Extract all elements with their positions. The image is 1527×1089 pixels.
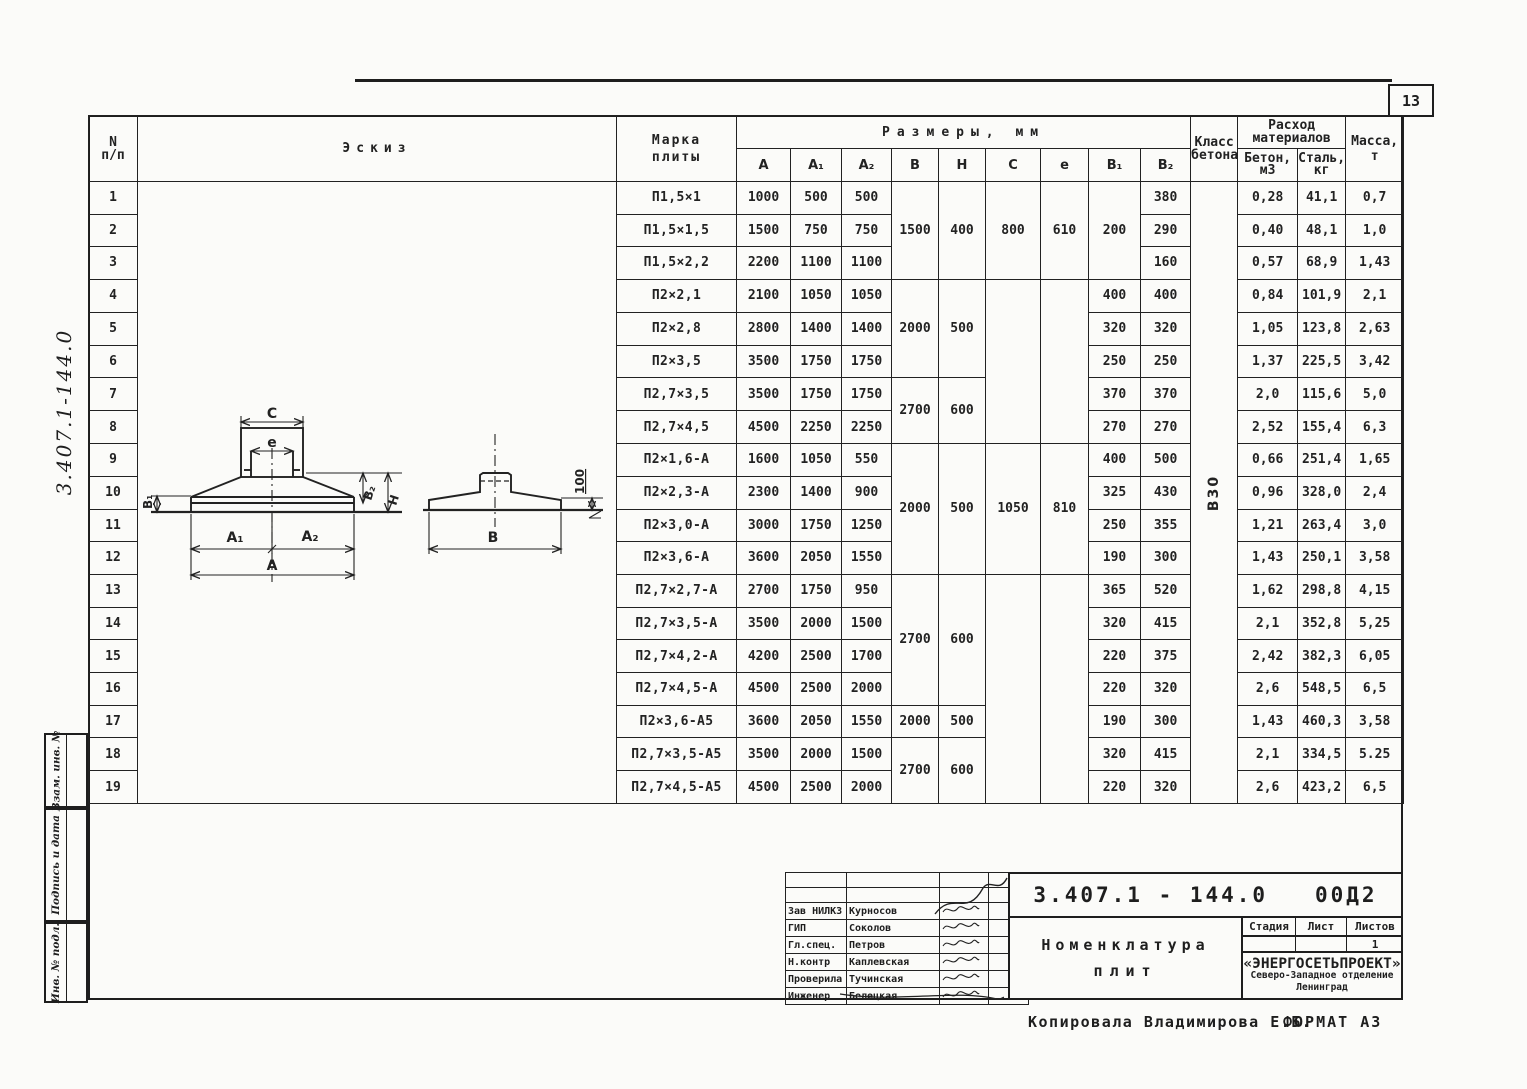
cell-B1: 250	[1089, 509, 1141, 542]
signature-role: Зав НИЛКЗ	[786, 903, 847, 920]
cell-row-number: 2	[89, 214, 138, 247]
header-col-A2: А₂	[842, 149, 892, 182]
stamp-box-podpis-data: Подпись и дата	[44, 808, 88, 922]
cell-mark: П2,7×4,5-А5	[617, 771, 737, 804]
stamp-box-vzam-inv: Взам. инв. №	[44, 733, 88, 808]
cell-concrete-volume: 2,42	[1238, 640, 1298, 673]
header-col-A1: А₁	[791, 149, 842, 182]
cell-steel-weight: 101,9	[1298, 279, 1346, 312]
sheet-title-line1: Номенклатура	[1041, 936, 1209, 954]
table-row: 1	[89, 182, 1404, 215]
cell-A2: 1750	[842, 378, 892, 411]
header-col-B: В	[892, 149, 939, 182]
signature-cell	[940, 873, 989, 888]
header-class-line1: Класс	[1191, 136, 1237, 149]
header-materials-line2: материалов	[1238, 132, 1345, 145]
stamp-label-inv-podl: Инв. № подл.	[50, 922, 62, 1002]
signature-row: Зав НИЛКЗКурносов	[786, 903, 1029, 920]
cell-row-number: 8	[89, 411, 138, 444]
cell-A2: 1050	[842, 279, 892, 312]
cell-mark: П1,5×1	[617, 182, 737, 215]
dim-label-B2: В₂	[360, 484, 378, 502]
cell-B2: 355	[1141, 509, 1191, 542]
signature-autograph	[940, 971, 989, 988]
cell-A2: 900	[842, 476, 892, 509]
cell-A2: 2000	[842, 771, 892, 804]
cell-B: 2000	[892, 279, 939, 377]
cell-B1: 200	[1089, 182, 1141, 280]
cell-mass: 2,1	[1346, 279, 1404, 312]
cell-A1: 2000	[791, 607, 842, 640]
cell-A: 3500	[737, 378, 791, 411]
cell-mark: П2×3,6-А5	[617, 705, 737, 738]
cell-A: 2700	[737, 574, 791, 607]
cell-mass: 2,4	[1346, 476, 1404, 509]
cell-row-number: 12	[89, 542, 138, 575]
cell-mass: 2,63	[1346, 312, 1404, 345]
cell-B1: 220	[1089, 640, 1141, 673]
plate-sketch: С е В₁ В₂ Н А₁ А₂ А В 100	[140, 182, 615, 799]
cell-row-number: 4	[89, 279, 138, 312]
cell-A: 2300	[737, 476, 791, 509]
cell-A2: 950	[842, 574, 892, 607]
cell-mark: П2,7×3,5	[617, 378, 737, 411]
cell-mark: П2,7×3,5-А	[617, 607, 737, 640]
stamp-box-inv-podl: Инв. № подл.	[44, 922, 88, 1003]
signature-name: Соколов	[847, 920, 940, 937]
cell-A2: 1500	[842, 607, 892, 640]
cell-A: 3500	[737, 607, 791, 640]
cell-A1: 2500	[791, 640, 842, 673]
page-number-box: 13	[1388, 84, 1434, 117]
cell-row-number: 10	[89, 476, 138, 509]
organization-name: «ЭНЕРГОСЕТЬПРОЕКТ»	[1243, 958, 1400, 970]
cell-mass: 3,58	[1346, 542, 1404, 575]
cell-C	[986, 574, 1041, 803]
cell-B: 1500	[892, 182, 939, 280]
signature-autograph	[940, 920, 989, 937]
signature-cell	[847, 888, 940, 903]
signature-row: Н.контрКаплевская	[786, 954, 1029, 971]
cell-steel-weight: 298,8	[1298, 574, 1346, 607]
dim-label-A2: А₂	[301, 529, 318, 545]
header-sizes-group: Размеры, мм	[737, 116, 1191, 149]
cell-A1: 1750	[791, 574, 842, 607]
cell-C: 800	[986, 182, 1041, 280]
cell-A1: 1750	[791, 509, 842, 542]
cell-mark: П2×1,6-А	[617, 443, 737, 476]
header-concrete-line2: м3	[1238, 165, 1297, 177]
cell-B2: 370	[1141, 378, 1191, 411]
cell-mark: П1,5×1,5	[617, 214, 737, 247]
stamp-label-vzam-inv: Взам. инв. №	[50, 730, 62, 811]
cell-B: 2700	[892, 574, 939, 705]
organization-branch: Северо-Западное отделение	[1251, 970, 1394, 982]
cell-concrete-volume: 1,05	[1238, 312, 1298, 345]
cell-B2: 400	[1141, 279, 1191, 312]
cell-row-number: 17	[89, 705, 138, 738]
signature-cell	[847, 873, 940, 888]
cell-concrete-volume: 0,66	[1238, 443, 1298, 476]
cell-C	[986, 279, 1041, 443]
cell-A: 4500	[737, 411, 791, 444]
cell-concrete-volume: 1,62	[1238, 574, 1298, 607]
side-handwritten-doc-number: 3.407.1-144.0	[52, 302, 76, 522]
doc-number: 3.407.1 - 144.0 00Д2	[1033, 883, 1377, 907]
cell-concrete-volume: 0,96	[1238, 476, 1298, 509]
header-num: N п/п	[89, 116, 138, 182]
signature-role: Проверила	[786, 971, 847, 988]
cell-B1: 320	[1089, 607, 1141, 640]
cell-concrete-volume: 0,84	[1238, 279, 1298, 312]
cell-A2: 1500	[842, 738, 892, 771]
cell-B1: 220	[1089, 673, 1141, 706]
cell-B1: 270	[1089, 411, 1141, 444]
cell-row-number: 1	[89, 182, 138, 215]
signature-table: Зав НИЛКЗКурносовГИПСоколовГл.спец.Петро…	[785, 872, 1029, 1005]
cell-steel-weight: 460,3	[1298, 705, 1346, 738]
cell-B2: 320	[1141, 673, 1191, 706]
cell-steel-weight: 115,6	[1298, 378, 1346, 411]
cell-mass: 5,25	[1346, 607, 1404, 640]
cell-A: 3000	[737, 509, 791, 542]
cell-concrete-volume: 0,40	[1238, 214, 1298, 247]
footer-format: ФОРМАТ А3	[1283, 1013, 1382, 1031]
stamp-label-podpis-data: Подпись и дата	[50, 815, 62, 915]
cell-concrete-volume: 2,6	[1238, 673, 1298, 706]
dim-label-B1: В₁	[141, 495, 155, 509]
cell-B1: 400	[1089, 443, 1141, 476]
cell-mark: П2,7×3,5-А5	[617, 738, 737, 771]
cell-A1: 1400	[791, 476, 842, 509]
cell-steel-weight: 123,8	[1298, 312, 1346, 345]
signature-autograph	[940, 903, 989, 920]
signature-role: Гл.спец.	[786, 937, 847, 954]
signature-row	[786, 888, 1029, 903]
dim-label-B: В	[487, 530, 498, 546]
cell-row-number: 3	[89, 247, 138, 280]
cell-steel-weight: 352,8	[1298, 607, 1346, 640]
cell-concrete-volume: 2,1	[1238, 738, 1298, 771]
signature-role: Н.контр	[786, 954, 847, 971]
cell-A: 4500	[737, 673, 791, 706]
cell-A2: 500	[842, 182, 892, 215]
title-block: Зав НИЛКЗКурносовГИПСоколовГл.спец.Петро…	[785, 872, 1403, 1000]
cell-A2: 1100	[842, 247, 892, 280]
cell-mark: П2×2,1	[617, 279, 737, 312]
cell-mark: П2×3,0-А	[617, 509, 737, 542]
cell-mark: П2,7×4,5	[617, 411, 737, 444]
header-sketch: Эскиз	[138, 116, 617, 182]
cell-A2: 2000	[842, 673, 892, 706]
cell-B: 2000	[892, 443, 939, 574]
cell-A: 3500	[737, 345, 791, 378]
cell-concrete-volume: 1,43	[1238, 705, 1298, 738]
cell-A1: 1400	[791, 312, 842, 345]
cell-mass: 6,05	[1346, 640, 1404, 673]
cell-B1: 320	[1089, 738, 1141, 771]
cell-B2: 300	[1141, 542, 1191, 575]
stage-col-listov: Листов	[1347, 918, 1403, 935]
header-mass-line1: Масса,	[1346, 134, 1403, 149]
cell-steel-weight: 382,3	[1298, 640, 1346, 673]
cell-mass: 5,0	[1346, 378, 1404, 411]
cell-A1: 1750	[791, 378, 842, 411]
cell-steel-weight: 48,1	[1298, 214, 1346, 247]
cell-steel-weight: 548,5	[1298, 673, 1346, 706]
cell-e: 810	[1041, 443, 1089, 574]
cell-B2: 290	[1141, 214, 1191, 247]
signature-row: Гл.спец.Петров	[786, 937, 1029, 954]
header-mass-line2: т	[1346, 149, 1403, 164]
header-num-line2: п/п	[89, 149, 137, 162]
cell-concrete-volume: 1,43	[1238, 542, 1298, 575]
cell-H: 500	[939, 705, 986, 738]
cell-concrete-volume: 2,0	[1238, 378, 1298, 411]
cell-mass: 3,58	[1346, 705, 1404, 738]
cell-H: 600	[939, 574, 986, 705]
stage-value-stadiya	[1243, 937, 1296, 951]
cell-mass: 5.25	[1346, 738, 1404, 771]
cell-A1: 2500	[791, 771, 842, 804]
page-number: 13	[1402, 92, 1420, 110]
cell-A1: 750	[791, 214, 842, 247]
organization-box: «ЭНЕРГОСЕТЬПРОЕКТ» Северо-Западное отдел…	[1241, 951, 1403, 1000]
cell-H: 600	[939, 378, 986, 444]
cell-e	[1041, 279, 1089, 443]
cell-A1: 1750	[791, 345, 842, 378]
cell-row-number: 19	[89, 771, 138, 804]
cell-B1: 325	[1089, 476, 1141, 509]
cell-B2: 375	[1141, 640, 1191, 673]
header-concrete-class: Класс бетона	[1191, 116, 1238, 182]
cell-A: 3500	[737, 738, 791, 771]
cell-mass: 6,3	[1346, 411, 1404, 444]
cell-A2: 550	[842, 443, 892, 476]
signature-name: Белецкая	[847, 988, 940, 1005]
cell-A: 2100	[737, 279, 791, 312]
cell-mass: 4,15	[1346, 574, 1404, 607]
header-concrete-sub: Бетон, м3	[1238, 149, 1298, 182]
header-col-A: А	[737, 149, 791, 182]
cell-steel-weight: 334,5	[1298, 738, 1346, 771]
cell-steel-weight: 41,1	[1298, 182, 1346, 215]
cell-B2: 320	[1141, 771, 1191, 804]
cell-A2: 750	[842, 214, 892, 247]
header-mass: Масса, т	[1346, 116, 1404, 182]
signature-row	[786, 873, 1029, 888]
cell-steel-weight: 328,0	[1298, 476, 1346, 509]
cell-A: 3600	[737, 705, 791, 738]
cell-A2: 1550	[842, 542, 892, 575]
cell-row-number: 18	[89, 738, 138, 771]
dimension-lines	[151, 416, 603, 580]
cell-B2: 300	[1141, 705, 1191, 738]
cell-A2: 2250	[842, 411, 892, 444]
cell-concrete-volume: 1,21	[1238, 509, 1298, 542]
header-col-B1: В₁	[1089, 149, 1141, 182]
cell-mark: П2×2,3-А	[617, 476, 737, 509]
cell-B2: 380	[1141, 182, 1191, 215]
cell-mass: 1,0	[1346, 214, 1404, 247]
cell-A: 4200	[737, 640, 791, 673]
cell-steel-weight: 251,4	[1298, 443, 1346, 476]
cell-A1: 1050	[791, 443, 842, 476]
cell-B2: 270	[1141, 411, 1191, 444]
cell-B2: 415	[1141, 607, 1191, 640]
cell-B2: 160	[1141, 247, 1191, 280]
cell-A1: 500	[791, 182, 842, 215]
drawing-frame: N п/п Эскиз Марка плиты Размеры, мм Клас…	[88, 115, 1403, 1000]
cell-A1: 2250	[791, 411, 842, 444]
cell-A2: 1700	[842, 640, 892, 673]
cell-B1: 190	[1089, 705, 1141, 738]
cell-steel-weight: 423,2	[1298, 771, 1346, 804]
cell-concrete-class: В30	[1191, 182, 1238, 804]
cell-A: 1600	[737, 443, 791, 476]
cell-mass: 3,0	[1346, 509, 1404, 542]
cell-A1: 1100	[791, 247, 842, 280]
stage-col-stadiya: Стадия	[1243, 918, 1296, 935]
doc-number-box: 3.407.1 - 144.0 00Д2	[1008, 872, 1403, 918]
header-mark-line1: Марка	[617, 132, 736, 149]
cell-A1: 2050	[791, 542, 842, 575]
header-col-e: е	[1041, 149, 1089, 182]
dim-label-A: А	[266, 558, 277, 574]
signature-row: ИнженерБелецкая	[786, 988, 1029, 1005]
cell-A: 1500	[737, 214, 791, 247]
signature-name: Тучинская	[847, 971, 940, 988]
header-steel-line2: кг	[1298, 165, 1345, 177]
signature-row: ГИПСоколов	[786, 920, 1029, 937]
cell-row-number: 16	[89, 673, 138, 706]
cell-B2: 415	[1141, 738, 1191, 771]
cell-concrete-volume: 2,1	[1238, 607, 1298, 640]
cell-row-number: 7	[89, 378, 138, 411]
signature-cell	[940, 888, 989, 903]
cell-steel-weight: 68,9	[1298, 247, 1346, 280]
top-rule-line	[355, 79, 1392, 82]
header-materials-group: Расход материалов	[1238, 116, 1346, 149]
cell-e	[1041, 574, 1089, 803]
sheet-title-box: Номенклатура плит	[1008, 916, 1243, 1000]
header-col-B2: В₂	[1141, 149, 1191, 182]
cell-mark: П2,7×4,2-А	[617, 640, 737, 673]
cell-B2: 320	[1141, 312, 1191, 345]
dim-label-e: е	[267, 435, 277, 451]
cell-B2: 520	[1141, 574, 1191, 607]
cell-B1: 400	[1089, 279, 1141, 312]
cell-mass: 1,65	[1346, 443, 1404, 476]
dim-label-A1: А₁	[226, 530, 243, 546]
cell-row-number: 6	[89, 345, 138, 378]
header-mark: Марка плиты	[617, 116, 737, 182]
cell-A: 3600	[737, 542, 791, 575]
cell-B1: 320	[1089, 312, 1141, 345]
cell-concrete-volume: 1,37	[1238, 345, 1298, 378]
stage-col-list: Лист	[1296, 918, 1347, 935]
signature-name: Петров	[847, 937, 940, 954]
plates-table: N п/п Эскиз Марка плиты Размеры, мм Клас…	[88, 115, 1404, 804]
cell-mark: П2×3,6-А	[617, 542, 737, 575]
cell-A: 1000	[737, 182, 791, 215]
cell-steel-weight: 263,4	[1298, 509, 1346, 542]
signature-autograph	[940, 954, 989, 971]
cell-A: 2800	[737, 312, 791, 345]
center-lines	[272, 434, 495, 582]
cell-A1: 1050	[791, 279, 842, 312]
signature-row: ПроверилаТучинская	[786, 971, 1029, 988]
cell-B: 2700	[892, 378, 939, 444]
cell-e: 610	[1041, 182, 1089, 280]
cell-B1: 190	[1089, 542, 1141, 575]
footer-copied-by: Копировала Владимирова Е.Б.	[1028, 1013, 1312, 1031]
cell-row-number: 9	[89, 443, 138, 476]
cell-concrete-volume: 2,52	[1238, 411, 1298, 444]
cell-row-number: 5	[89, 312, 138, 345]
stamp-label-cell: Подпись и дата	[46, 810, 67, 920]
cell-concrete-volume: 0,57	[1238, 247, 1298, 280]
header-num-line1: N	[89, 136, 137, 149]
cell-B1: 220	[1089, 771, 1141, 804]
cell-H: 400	[939, 182, 986, 280]
header-col-C: С	[986, 149, 1041, 182]
cell-A: 4500	[737, 771, 791, 804]
cell-B2: 500	[1141, 443, 1191, 476]
cell-H: 500	[939, 443, 986, 574]
cell-A2: 1550	[842, 705, 892, 738]
cell-mass: 1,43	[1346, 247, 1404, 280]
table-header-row-1: N п/п Эскиз Марка плиты Размеры, мм Клас…	[89, 116, 1404, 149]
stage-value-list	[1296, 937, 1347, 951]
stamp-label-cell: Инв. № подл.	[46, 924, 67, 1001]
stage-header-row: Стадия Лист Листов	[1241, 916, 1403, 937]
cell-mark: П2,7×4,5-А	[617, 673, 737, 706]
cell-concrete-volume: 0,28	[1238, 182, 1298, 215]
scanned-drawing-sheet: { "page": { "number": "13", "footer_copi…	[0, 0, 1527, 1089]
cell-mass: 0,7	[1346, 182, 1404, 215]
cell-steel-weight: 225,5	[1298, 345, 1346, 378]
header-col-H: Н	[939, 149, 986, 182]
cell-mass: 6,5	[1346, 673, 1404, 706]
cell-B2: 430	[1141, 476, 1191, 509]
cell-mass: 6,5	[1346, 771, 1404, 804]
cell-mark: П2,7×2,7-А	[617, 574, 737, 607]
cell-H: 600	[939, 738, 986, 804]
signature-role: ГИП	[786, 920, 847, 937]
cell-A1: 2500	[791, 673, 842, 706]
sketch-cell: С е В₁ В₂ Н А₁ А₂ А В 100	[138, 182, 617, 804]
sheet-title-line2: плит	[1093, 962, 1157, 980]
cell-row-number: 15	[89, 640, 138, 673]
cell-A2: 1250	[842, 509, 892, 542]
signature-autograph	[940, 937, 989, 954]
cell-row-number: 11	[89, 509, 138, 542]
cell-A2: 1750	[842, 345, 892, 378]
cell-H: 500	[939, 279, 986, 377]
cell-B2: 250	[1141, 345, 1191, 378]
cell-row-number: 14	[89, 607, 138, 640]
table-body: 1	[89, 182, 1404, 804]
header-mark-line2: плиты	[617, 149, 736, 166]
header-steel-sub: Сталь, кг	[1298, 149, 1346, 182]
cell-steel-weight: 250,1	[1298, 542, 1346, 575]
signature-autograph	[940, 988, 989, 1005]
signature-name: Курносов	[847, 903, 940, 920]
cell-row-number: 13	[89, 574, 138, 607]
header-class-line2: бетона	[1191, 149, 1237, 162]
cell-A2: 1400	[842, 312, 892, 345]
